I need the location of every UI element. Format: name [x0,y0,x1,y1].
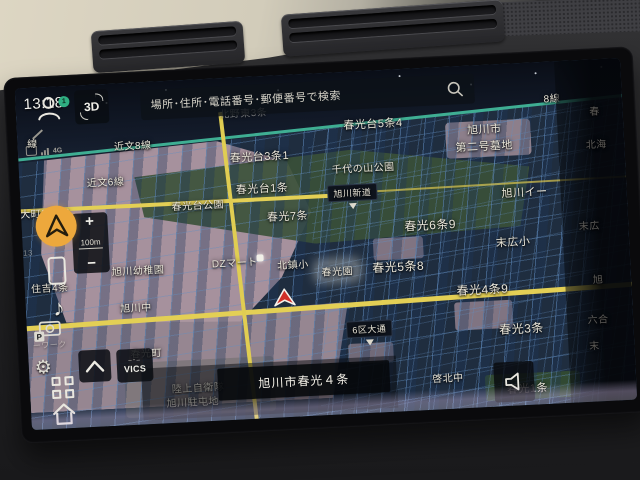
search-icon [446,80,465,99]
vics-label: VICS [124,363,147,374]
map-label: 末広 [578,217,600,233]
zoom-in-button[interactable]: + [85,215,94,229]
map-locate-button[interactable] [35,205,78,248]
navigation-arrow-icon [35,205,77,247]
notification-badge: 1 [58,96,70,108]
home-button[interactable] [31,399,98,428]
volume-button[interactable] [493,361,535,403]
map-scale-label: 100m [78,237,103,249]
network-type-label: 4G [53,147,63,154]
status-chip-icon [26,146,37,157]
map-label: 六合 [587,310,609,326]
rotate-arc-icon [95,93,103,101]
music-note-icon: ♪ [52,294,65,322]
phone-button[interactable] [23,253,91,288]
home-icon [50,400,79,427]
profile-button[interactable]: 1 [15,93,82,122]
chevron-up-icon [82,358,107,373]
map-label: 末 [589,337,600,353]
music-button[interactable]: ♪ [25,293,92,323]
signal-icon [41,148,49,155]
apps-grid-icon [51,376,74,399]
speaker-grille [489,0,640,37]
vics-button[interactable]: –･– VICS [116,348,154,383]
phone-icon [44,254,70,287]
navigation-screen[interactable]: 線近文8線北野東3条8線春光台5条4旭川市第二号墓地春光台3条1近文6線千代の山… [15,58,638,430]
display-bezel: 線近文8線北野東3条8線春光台5条4旭川市第二号墓地春光台3条1近文6線千代の山… [3,46,640,443]
status-icons: 4G [26,144,63,156]
map-label: 春 [589,103,600,119]
apps-button[interactable] [29,375,96,400]
current-address: 旭川市春光４条 [258,370,350,392]
speaker-icon [501,368,528,395]
map-label: 旭 [592,271,603,287]
map-label: 北海 [585,135,607,151]
